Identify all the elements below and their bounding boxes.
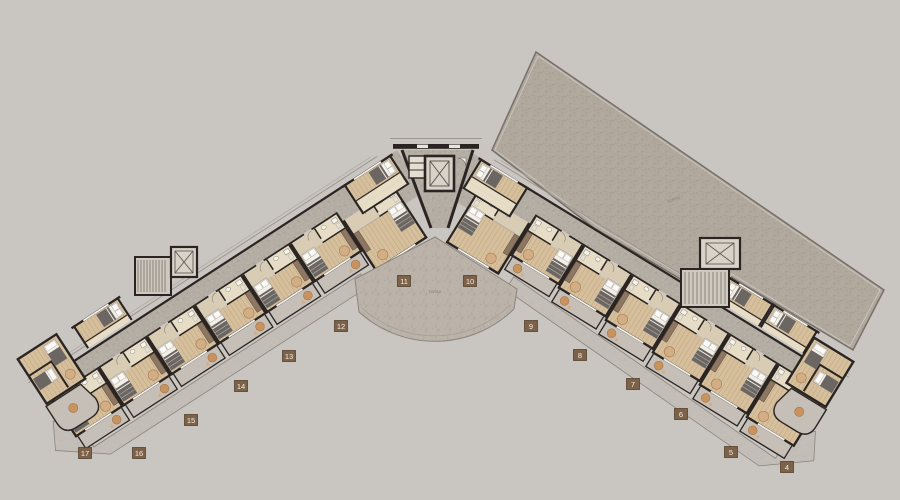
svg-text:12: 12 [337, 322, 345, 331]
svg-text:16: 16 [135, 449, 143, 458]
svg-text:13: 13 [285, 352, 293, 361]
svg-text:10: 10 [466, 277, 474, 286]
svg-text:6: 6 [679, 410, 683, 419]
svg-text:4: 4 [785, 463, 789, 472]
svg-text:11: 11 [400, 277, 408, 286]
svg-text:5: 5 [729, 448, 733, 457]
svg-text:9: 9 [529, 322, 533, 331]
svg-text:8: 8 [578, 351, 582, 360]
svg-text:TERAS: TERAS [428, 289, 442, 294]
svg-text:15: 15 [187, 416, 195, 425]
svg-text:7: 7 [631, 380, 635, 389]
svg-text:14: 14 [237, 382, 245, 391]
svg-text:17: 17 [81, 449, 89, 458]
